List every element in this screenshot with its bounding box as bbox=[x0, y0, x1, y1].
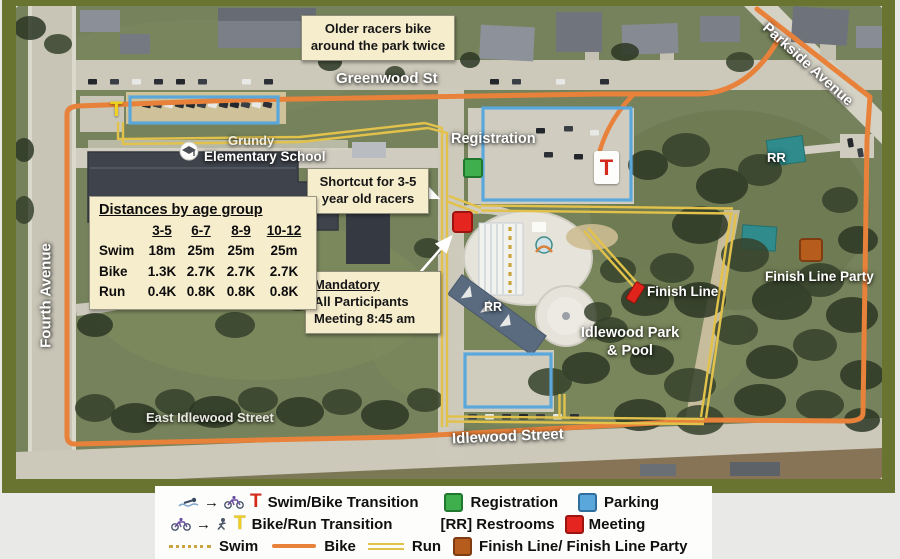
registration-label: Registration bbox=[451, 131, 536, 147]
swimmer-icon bbox=[177, 496, 201, 509]
street-label-east-idlewood: East Idlewood Street bbox=[146, 410, 274, 425]
callout-older-racers-line2: around the park twice bbox=[310, 38, 446, 55]
distances-grid: 3-5 6-7 8-9 10-12 Swim 18m 25m 25m 25m B… bbox=[99, 221, 307, 302]
legend-run-line-swatch bbox=[368, 543, 404, 550]
run-3-5: 0.4K bbox=[143, 282, 181, 302]
distances-row-run-label: Run bbox=[99, 282, 143, 302]
distances-col-10-12: 10-12 bbox=[261, 221, 307, 241]
callout-mandatory-line1: Mandatory bbox=[314, 277, 432, 294]
park-pool-label: Idlewood Park & Pool bbox=[580, 324, 680, 360]
street-label-greenwood: Greenwood St bbox=[336, 70, 438, 87]
legend-swim-label: Swim bbox=[219, 538, 258, 555]
distances-row-bike-label: Bike bbox=[99, 262, 143, 282]
legend-red-t: T bbox=[250, 491, 262, 513]
finish-line-label: Finish Line bbox=[647, 284, 718, 299]
registration-marker bbox=[463, 158, 483, 178]
swim-6-7: 25m bbox=[181, 241, 221, 261]
finish-line-party-label: Finish Line Party bbox=[765, 269, 874, 284]
legend-swim-line-swatch bbox=[169, 545, 211, 548]
swim-3-5: 18m bbox=[143, 241, 181, 261]
legend-row-3: Swim Bike Run Finish Line/ Finish Line P… bbox=[169, 535, 712, 557]
bike-run-transition-marker: T bbox=[110, 98, 123, 122]
legend-finish-label: Finish Line/ Finish Line Party bbox=[479, 538, 687, 555]
callout-older-racers: Older racers bike around the park twice bbox=[301, 15, 455, 61]
cyclist-icon bbox=[222, 495, 246, 509]
callout-mandatory-line3: Meeting 8:45 am bbox=[314, 311, 432, 328]
restroom-label-north: RR bbox=[767, 150, 786, 165]
distances-row-swim-label: Swim bbox=[99, 241, 143, 261]
callout-shortcut: Shortcut for 3-5 year old racers bbox=[307, 168, 429, 214]
street-label-fourth: Fourth Avenue bbox=[38, 216, 55, 376]
callout-mandatory-line2: All Participants bbox=[314, 294, 432, 311]
legend-row-2: → T Bike/Run Transition [RR] Restrooms M… bbox=[169, 513, 712, 535]
legend-registration-swatch bbox=[444, 493, 463, 512]
legend-swim-bike-transition-label: Swim/Bike Transition bbox=[268, 494, 419, 511]
school-label-line2: Elementary School bbox=[204, 149, 326, 164]
legend-run-label: Run bbox=[412, 538, 441, 555]
legend-parking-label: Parking bbox=[604, 494, 659, 511]
event-map-page: Greenwood St Parkside Avenue Fourth Aven… bbox=[0, 0, 900, 559]
callout-shortcut-line2: year old racers bbox=[316, 191, 420, 208]
callout-older-racers-line1: Older racers bike bbox=[310, 21, 446, 38]
restroom-label-pool: RR bbox=[484, 300, 502, 314]
legend-bike-label: Bike bbox=[324, 538, 356, 555]
run-10-12: 0.8K bbox=[261, 282, 307, 302]
distances-table: Distances by age group 3-5 6-7 8-9 10-12… bbox=[89, 196, 317, 310]
runner-icon bbox=[214, 517, 230, 531]
park-pool-label-line1: Idlewood Park bbox=[580, 324, 680, 342]
meeting-marker bbox=[452, 211, 473, 233]
legend-yellow-t: T bbox=[234, 513, 246, 535]
legend-bike-line-swatch bbox=[272, 544, 316, 549]
park-pool-label-line2: & Pool bbox=[580, 342, 680, 360]
legend-parking-swatch bbox=[578, 493, 597, 512]
callout-mandatory-meeting: Mandatory All Participants Meeting 8:45 … bbox=[305, 271, 441, 334]
swim-bike-transition-letter: T bbox=[600, 155, 613, 181]
school-label-line1: Grundy bbox=[228, 133, 274, 148]
swim-8-9: 25m bbox=[221, 241, 261, 261]
bike-3-5: 1.3K bbox=[143, 262, 181, 282]
legend-row-1: → T Swim/Bike Transition Registration Pa… bbox=[169, 491, 712, 513]
map-legend: → T Swim/Bike Transition Registration Pa… bbox=[155, 486, 712, 559]
swim-bike-transition-marker: T bbox=[594, 151, 619, 184]
bike-10-12: 2.7K bbox=[261, 262, 307, 282]
legend-meeting-swatch bbox=[565, 515, 584, 534]
run-8-9: 0.8K bbox=[221, 282, 261, 302]
distances-col-6-7: 6-7 bbox=[181, 221, 221, 241]
legend-restrooms-label: [RR] Restrooms bbox=[440, 516, 554, 533]
legend-meeting-label: Meeting bbox=[589, 516, 646, 533]
legend-registration-label: Registration bbox=[470, 494, 558, 511]
arrow-right-1: → bbox=[204, 494, 219, 511]
distances-title: Distances by age group bbox=[99, 202, 307, 218]
legend-bike-run-transition-label: Bike/Run Transition bbox=[252, 516, 393, 533]
distances-col-8-9: 8-9 bbox=[221, 221, 261, 241]
finish-line-party-marker bbox=[799, 238, 823, 262]
school-poi-icon bbox=[180, 142, 198, 160]
bike-8-9: 2.7K bbox=[221, 262, 261, 282]
legend-finish-swatch bbox=[453, 537, 472, 556]
cyclist-icon-2 bbox=[169, 517, 193, 531]
bike-6-7: 2.7K bbox=[181, 262, 221, 282]
swim-10-12: 25m bbox=[261, 241, 307, 261]
callout-shortcut-line1: Shortcut for 3-5 bbox=[316, 174, 420, 191]
arrow-right-2: → bbox=[196, 516, 211, 533]
distances-col-3-5: 3-5 bbox=[143, 221, 181, 241]
run-6-7: 0.8K bbox=[181, 282, 221, 302]
